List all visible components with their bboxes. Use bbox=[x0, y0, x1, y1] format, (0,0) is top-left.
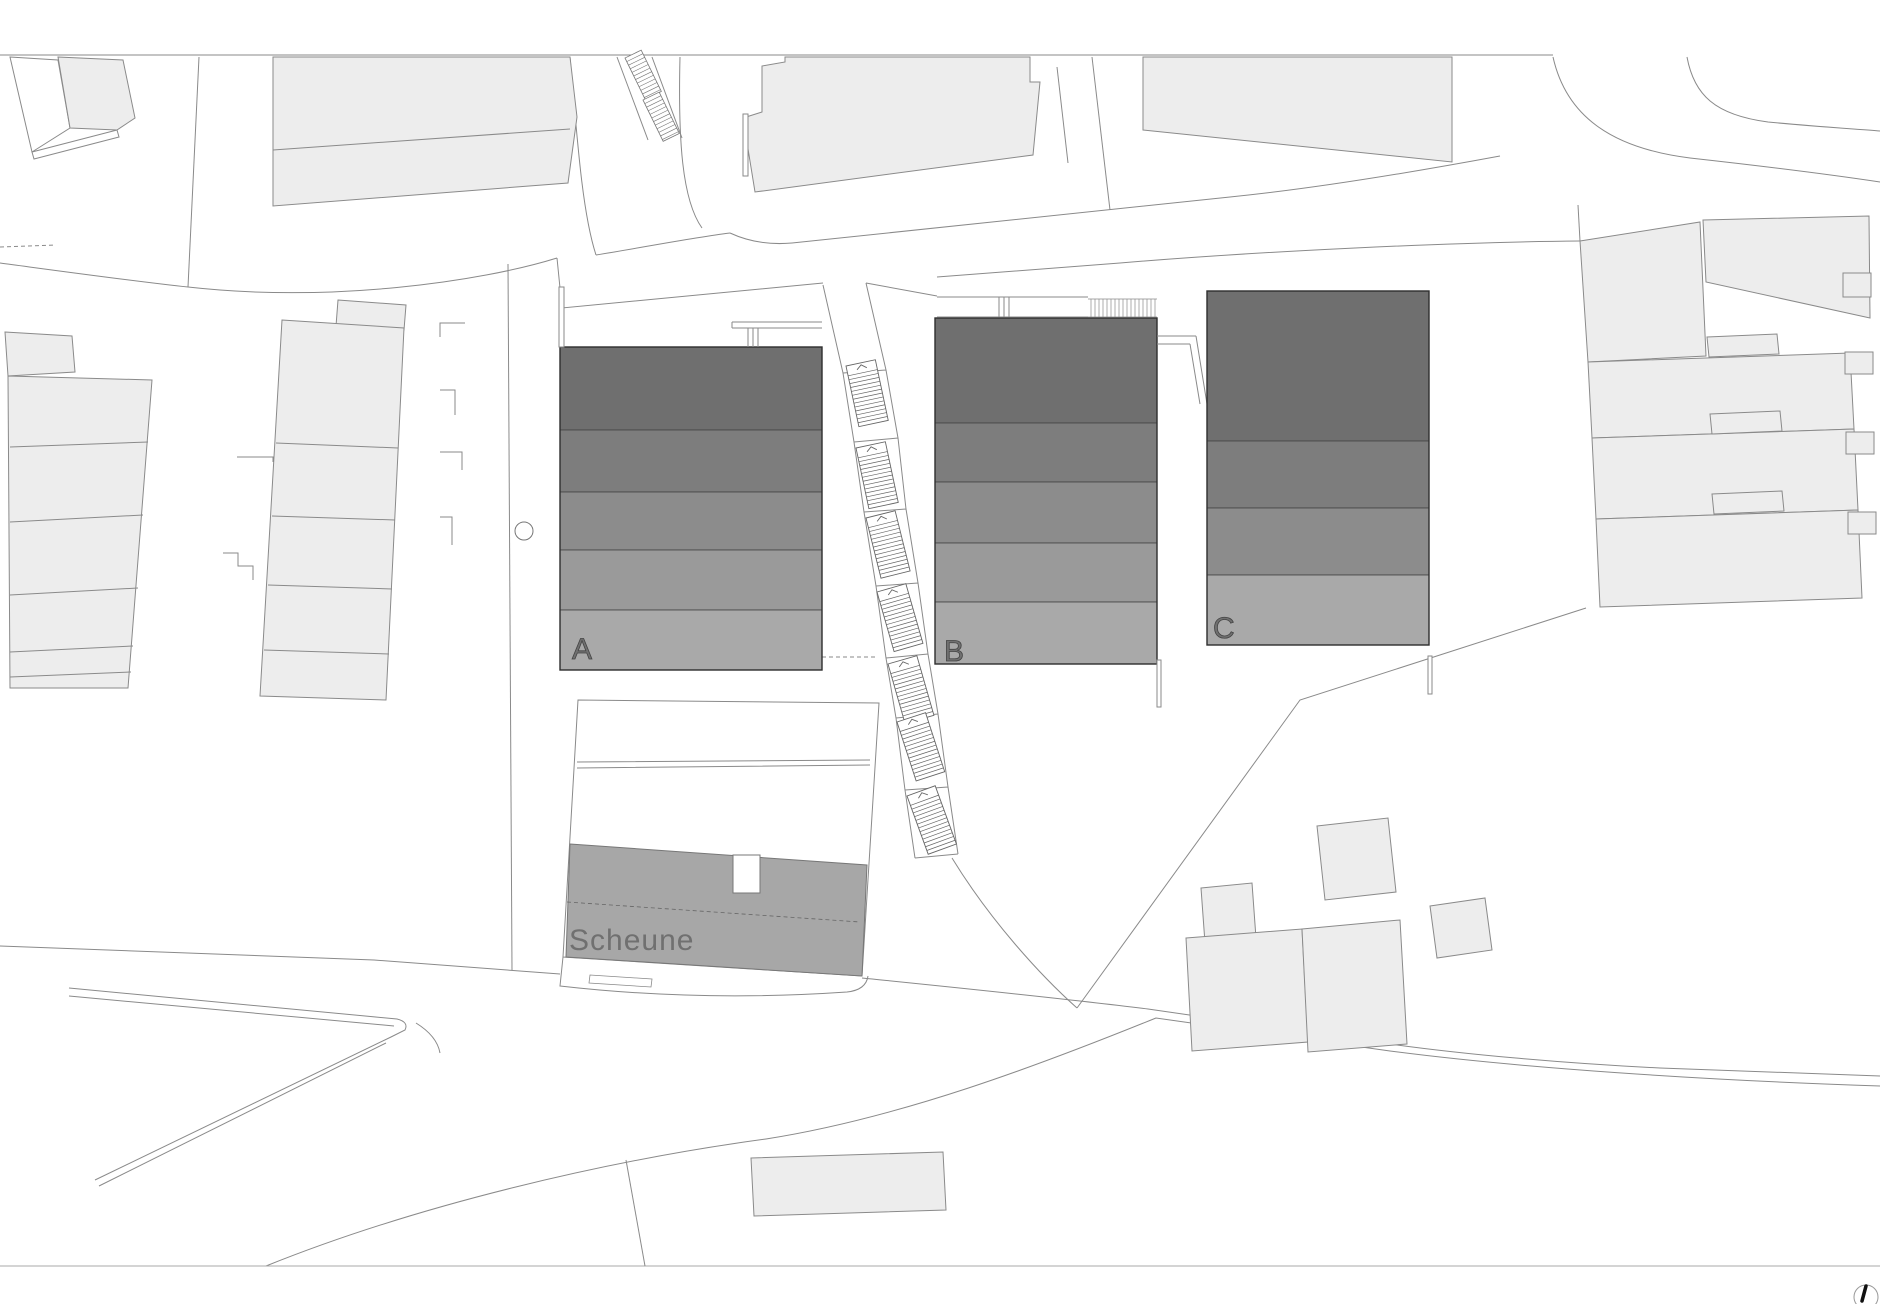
context-building-bottom-center bbox=[751, 1152, 946, 1216]
tree-circle bbox=[515, 522, 533, 540]
building-b-floor-5 bbox=[935, 602, 1157, 664]
context-building bbox=[1317, 818, 1396, 900]
barn-label: Scheune bbox=[569, 924, 694, 957]
wall-segment bbox=[1428, 656, 1432, 694]
context-annex bbox=[1845, 352, 1873, 374]
building-b-floor-4 bbox=[935, 543, 1157, 602]
context-row bbox=[1596, 510, 1862, 607]
site-plan: A B C bbox=[0, 0, 1880, 1304]
building-a-label: A bbox=[572, 633, 593, 666]
context-buildings-right bbox=[1578, 205, 1876, 607]
building-a-floor-4 bbox=[560, 550, 822, 610]
context-annex bbox=[1848, 512, 1876, 534]
wall-segment bbox=[743, 114, 748, 176]
context-bump bbox=[1710, 411, 1782, 434]
context-bump bbox=[1712, 491, 1784, 514]
context-building bbox=[1580, 222, 1706, 362]
context-building bbox=[1302, 920, 1407, 1052]
context-building bbox=[58, 57, 135, 130]
context-bump bbox=[1707, 334, 1779, 357]
building-c-floor-1 bbox=[1207, 291, 1429, 441]
building-a-floor-2 bbox=[560, 430, 822, 492]
building-c-floor-3 bbox=[1207, 508, 1429, 575]
building-c-floor-2 bbox=[1207, 441, 1429, 508]
barn-notch bbox=[733, 855, 760, 893]
building-b-floor-3 bbox=[935, 482, 1157, 543]
building-b-floor-1 bbox=[935, 318, 1157, 423]
building-b-label: B bbox=[944, 635, 965, 668]
context-building bbox=[1430, 898, 1492, 958]
building-c-label: C bbox=[1213, 612, 1236, 645]
context-row-mid bbox=[260, 320, 404, 700]
building-c: C bbox=[1207, 291, 1432, 694]
context-row-left bbox=[8, 376, 152, 688]
building-c-floor-4 bbox=[1207, 575, 1429, 645]
context-annex bbox=[1846, 432, 1874, 454]
building-a-floor-3 bbox=[560, 492, 822, 550]
context-building bbox=[5, 332, 75, 376]
building-a-floor-5 bbox=[560, 610, 822, 670]
site-plan-canvas: A B C bbox=[0, 0, 1880, 1304]
context-building bbox=[1186, 929, 1308, 1051]
barn-building: Scheune bbox=[560, 700, 879, 996]
context-annex bbox=[1843, 273, 1871, 297]
wall-segment bbox=[1157, 660, 1161, 707]
building-a-floor-1 bbox=[560, 347, 822, 430]
north-arrow-icon bbox=[1854, 1285, 1878, 1304]
building-b-floor-2 bbox=[935, 423, 1157, 482]
